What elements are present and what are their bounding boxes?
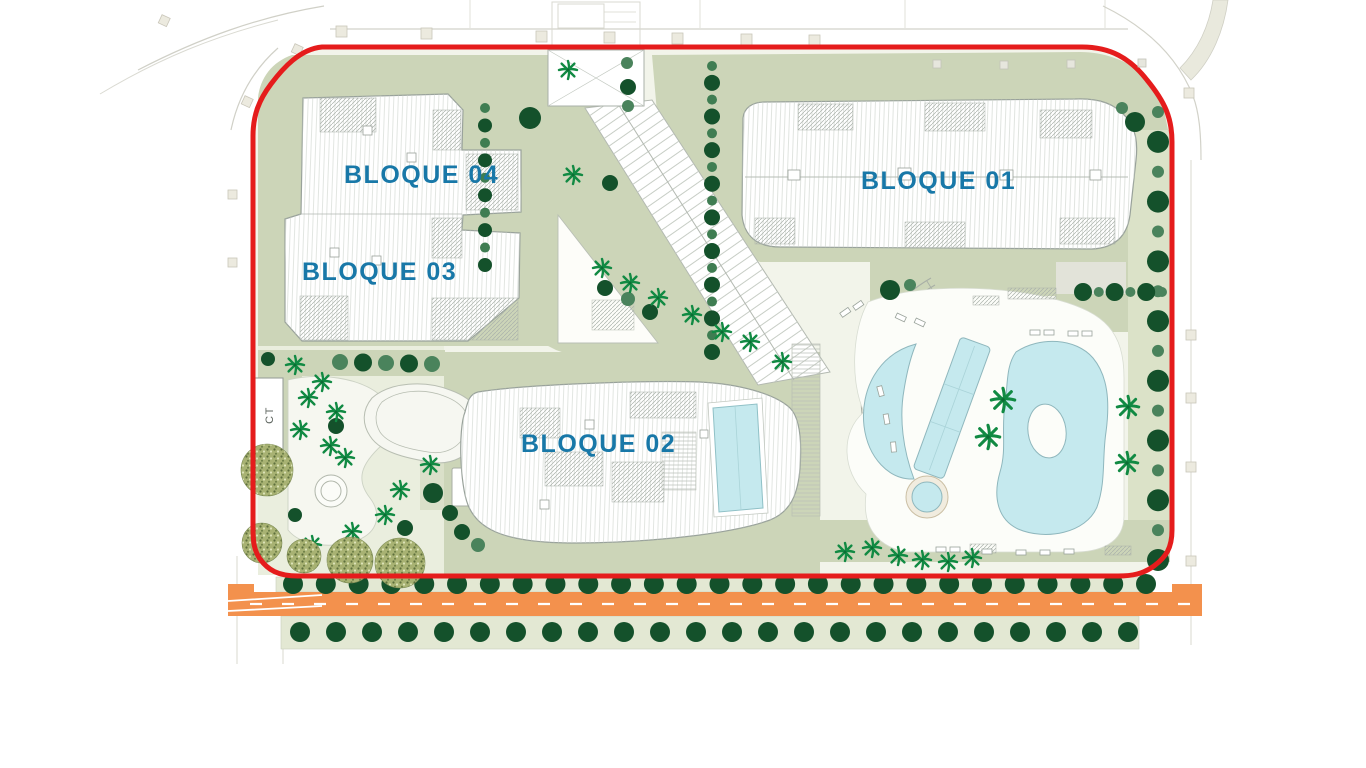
ct-transformer-box: CT: [255, 378, 283, 452]
pool-zone: [840, 288, 1131, 555]
site-plan-canvas: CT: [0, 0, 1366, 768]
plunge-pool: [906, 476, 948, 518]
ct-label: CT: [264, 406, 276, 424]
label-bloque-01: BLOQUE 01: [861, 167, 1016, 196]
label-bloque-04: BLOQUE 04: [344, 161, 499, 190]
label-bloque-02: BLOQUE 02: [521, 430, 676, 459]
label-bloque-03: BLOQUE 03: [302, 258, 457, 287]
fountain: [315, 475, 347, 507]
site-plan-drawing: CT: [0, 0, 1366, 768]
building-bloque-02: [461, 382, 801, 543]
